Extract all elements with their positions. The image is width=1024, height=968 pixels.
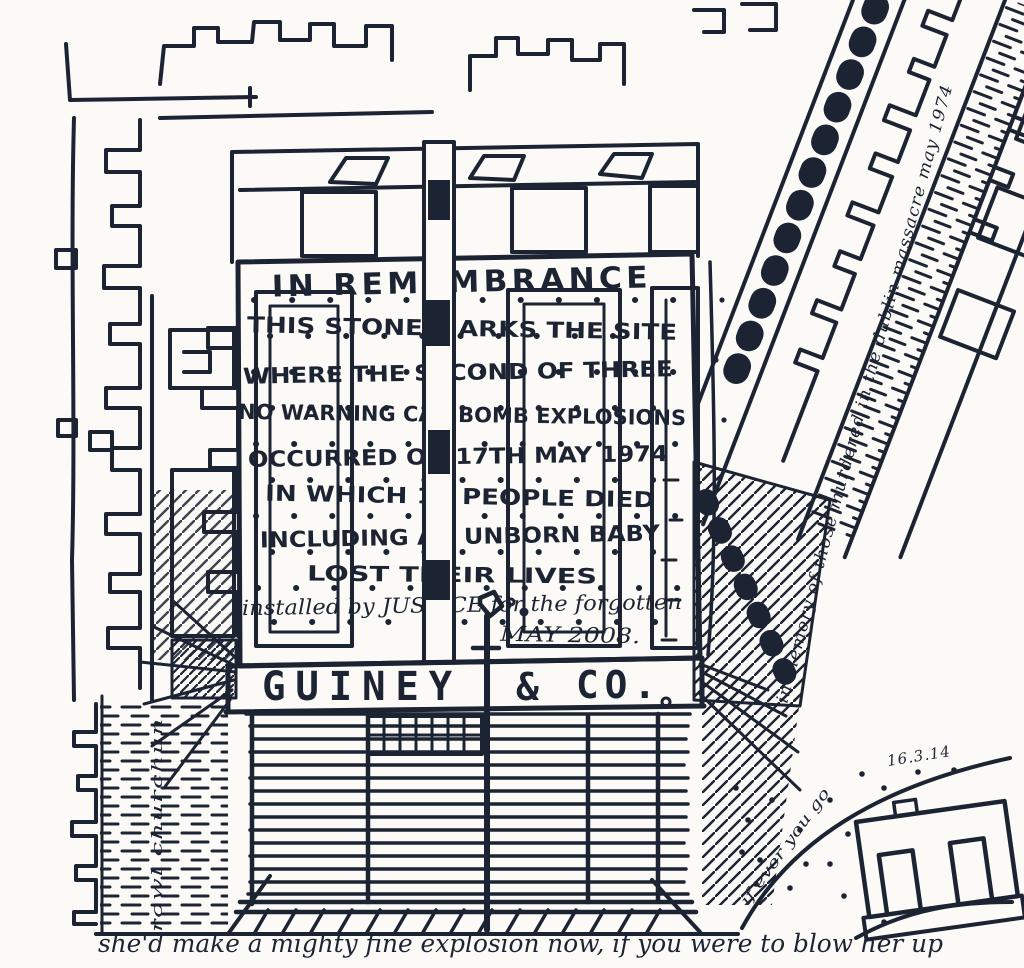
inscription-line: THIS STONE MARKS THE SITE xyxy=(247,313,677,346)
bottom-caption: she'd make a mighty fine explosion now, … xyxy=(98,929,943,958)
inscription-line: installed by JUSTICE for the forgotten xyxy=(242,590,682,620)
building-above-stone xyxy=(232,144,698,262)
left-street-note: rowl churchun xyxy=(148,717,166,932)
streets-top-left xyxy=(66,4,776,118)
inscription-line: MAY 2008. xyxy=(499,622,641,648)
sign-ampersand: & xyxy=(516,665,539,709)
drainpipe-column xyxy=(424,142,454,662)
inscription-line: NO WARNING CAR BOMB EXPLOSIONS xyxy=(238,400,686,430)
sketch-page: IN REMEMBRANCE THIS STONE MARKS THE SITE… xyxy=(0,0,1024,968)
plaza-building xyxy=(848,787,1024,940)
inscription-line: WHERE THE SECOND OF THREE xyxy=(243,357,673,390)
inscription-line: INCLUDING AN UNBORN BABY xyxy=(260,521,662,553)
sign-co: CO. xyxy=(576,663,662,707)
sketch-canvas: IN REMEMBRANCE THIS STONE MARKS THE SITE… xyxy=(0,0,1024,968)
left-street-houses xyxy=(56,118,152,700)
shutters xyxy=(236,714,696,912)
inscription-line: IN WHICH 14 PEOPLE DIED xyxy=(265,482,655,514)
sign-flourish xyxy=(662,698,670,706)
sketch-date: 16.3.14 xyxy=(886,742,952,770)
sign-name: GUINEY xyxy=(262,664,462,710)
